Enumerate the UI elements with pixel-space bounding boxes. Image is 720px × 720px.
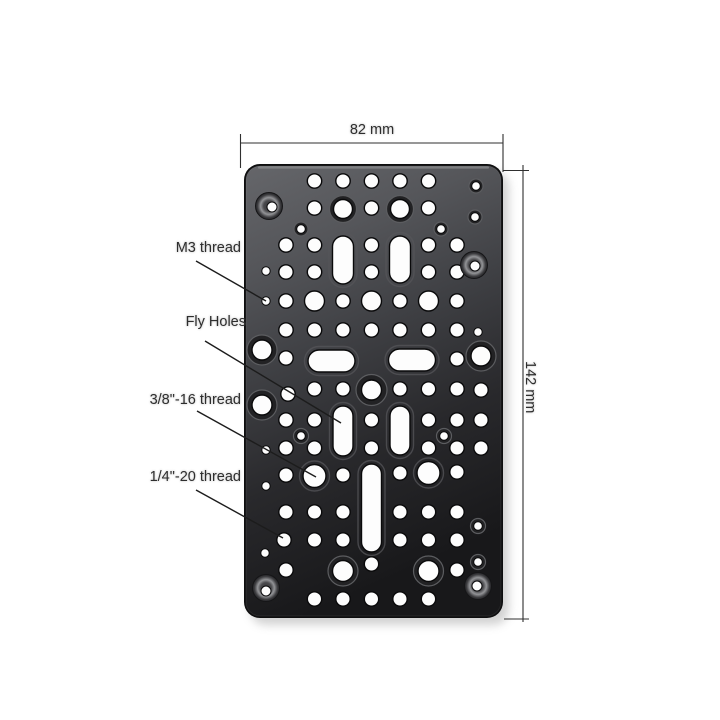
annotation-label-3-8-16-thread: 3/8"-16 thread: [150, 391, 241, 409]
plate-holes: [247, 174, 496, 606]
annotation-label-fly-holes: Fly Holes: [186, 313, 246, 331]
height-dimension-label: 142 mm: [522, 361, 538, 411]
annotation-label-m3-thread: M3 thread: [176, 239, 241, 257]
cheese-plate-figure: [0, 0, 720, 720]
width-dimension-label: 82 mm: [300, 121, 444, 139]
annotation-label-1-4-20-thread: 1/4"-20 thread: [150, 468, 241, 486]
cheese-plate-product-diagram: 82 mm 142 mm M3 thread Fly Holes 3/8"-16…: [0, 0, 720, 720]
